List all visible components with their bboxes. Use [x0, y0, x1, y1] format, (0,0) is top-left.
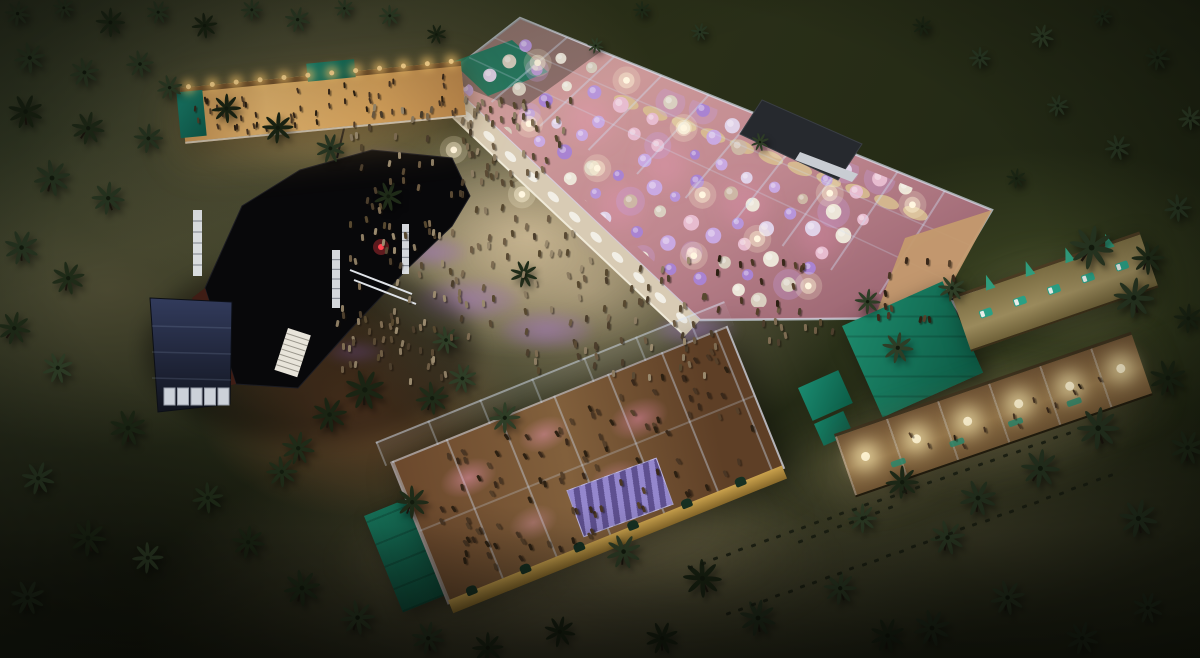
- person: [465, 522, 470, 529]
- palm-tree: [597, 525, 650, 578]
- person: [438, 232, 441, 239]
- person: [475, 147, 479, 154]
- person: [681, 375, 685, 382]
- person: [427, 228, 430, 235]
- person: [441, 260, 444, 267]
- person: [556, 116, 559, 123]
- person: [426, 362, 430, 369]
- fence-post-dash: [952, 471, 958, 475]
- fence-post-dash: [984, 518, 990, 523]
- string-light: [233, 79, 238, 84]
- person: [255, 111, 258, 117]
- table-grid: [382, 39, 913, 308]
- globe-light: [777, 141, 784, 148]
- fence-post-dash: [787, 589, 793, 594]
- person: [583, 450, 588, 457]
- person: [419, 347, 422, 354]
- red-stage-light: [378, 244, 384, 250]
- globe-light: [680, 125, 687, 132]
- person: [715, 269, 718, 276]
- walkway-table: [653, 290, 668, 305]
- green-lounger: [1007, 417, 1023, 428]
- person: [469, 120, 472, 127]
- person: [646, 296, 650, 303]
- palm-tree: [673, 549, 732, 608]
- warm-light-pool: [792, 325, 1192, 515]
- person: [359, 164, 363, 171]
- person: [377, 93, 380, 99]
- planter-shrub: [465, 584, 479, 596]
- person: [583, 275, 586, 282]
- walkway-table: [589, 230, 604, 245]
- person: [776, 300, 779, 307]
- teal-roof-panel-mid: [306, 59, 356, 82]
- cypress-plant: [1061, 246, 1075, 263]
- walkway-table: [503, 149, 518, 164]
- person: [341, 305, 344, 312]
- fence-post-dash: [750, 602, 756, 607]
- cypress-plant: [1021, 259, 1035, 276]
- globe-light: [754, 235, 761, 242]
- fence-post-dash: [1046, 495, 1052, 500]
- person: [398, 152, 401, 159]
- green-lounger: [890, 457, 906, 468]
- person: [641, 505, 646, 512]
- person: [660, 266, 664, 273]
- person: [462, 137, 466, 144]
- fence-post-dash: [726, 611, 732, 616]
- person: [500, 97, 504, 104]
- person: [461, 484, 465, 491]
- ground-lighting-layer: [0, 0, 1200, 658]
- fence-post-dash: [914, 485, 920, 489]
- palm-tree: [0, 85, 53, 138]
- palm-tree: [637, 613, 687, 658]
- pergola-globe-light: [860, 451, 871, 462]
- person: [521, 103, 525, 110]
- person: [580, 264, 584, 271]
- person: [365, 216, 369, 223]
- person: [569, 418, 574, 425]
- stage-red-wall: [192, 288, 236, 388]
- person: [403, 107, 406, 113]
- person: [243, 101, 245, 107]
- person: [619, 337, 623, 344]
- person: [290, 114, 293, 120]
- person: [587, 532, 592, 539]
- person: [522, 113, 525, 120]
- palm-tree: [60, 510, 116, 566]
- person: [486, 552, 491, 559]
- person: [523, 104, 526, 111]
- person: [373, 338, 376, 345]
- person: [884, 303, 888, 310]
- fence-post-dash: [990, 458, 996, 462]
- palm-tree: [963, 41, 997, 75]
- person: [750, 424, 754, 431]
- person: [618, 479, 622, 486]
- person: [606, 313, 610, 320]
- palm-tree: [1109, 489, 1168, 548]
- person: [433, 232, 436, 239]
- palm-tree: [407, 373, 457, 423]
- person: [487, 242, 490, 249]
- person: [569, 97, 572, 104]
- person: [1013, 413, 1016, 420]
- palm-tree: [83, 173, 133, 223]
- person: [484, 113, 487, 120]
- person: [656, 468, 660, 475]
- person: [883, 290, 887, 297]
- teal-kiosk-small: [814, 411, 853, 446]
- person: [511, 116, 515, 123]
- palm-trees-layer: [0, 0, 1200, 658]
- purple-spotlight-pool: [526, 166, 598, 198]
- string-light: [257, 77, 262, 82]
- person: [252, 122, 255, 128]
- person: [531, 153, 534, 160]
- person: [685, 345, 688, 352]
- cabana-canopy: [612, 92, 641, 113]
- globe-light: [623, 77, 630, 84]
- person: [193, 105, 196, 111]
- fence-post-dash: [814, 521, 820, 525]
- teal-roof-panel-left: [176, 90, 206, 138]
- person: [461, 191, 464, 198]
- palm-tree: [1124, 584, 1172, 632]
- palm-tree: [1123, 233, 1173, 283]
- person: [703, 372, 706, 379]
- fence-post-dash: [927, 480, 933, 484]
- stage-rail: [354, 280, 416, 304]
- person: [535, 350, 538, 357]
- person: [480, 99, 484, 106]
- person: [590, 528, 595, 535]
- person: [460, 179, 464, 186]
- string-light: [425, 61, 430, 66]
- palm-tree: [1172, 100, 1200, 136]
- fence-post-dash: [977, 463, 983, 467]
- person: [431, 159, 434, 166]
- palm-tree: [0, 0, 38, 34]
- palm-tree: [329, 0, 360, 23]
- person: [381, 239, 384, 246]
- person: [348, 345, 351, 352]
- glass-overhang: [443, 18, 600, 110]
- fence-post-dash: [836, 525, 842, 530]
- person: [420, 111, 423, 118]
- person: [206, 99, 208, 105]
- palm-tree: [100, 400, 156, 456]
- lounger: [1012, 295, 1027, 307]
- person: [466, 332, 470, 339]
- palm-tree: [6, 34, 54, 82]
- pergola-globe-light: [911, 433, 922, 444]
- person: [673, 470, 678, 477]
- person: [582, 455, 588, 462]
- fence-post-dash: [902, 489, 908, 493]
- person: [562, 127, 565, 134]
- person: [557, 249, 561, 256]
- bar-pavilion: [180, 61, 466, 144]
- palm-tree: [861, 609, 914, 658]
- palm-tree: [440, 356, 485, 401]
- person: [246, 129, 249, 135]
- person: [343, 82, 346, 88]
- person: [546, 541, 550, 548]
- person: [660, 374, 664, 381]
- person: [451, 280, 455, 287]
- fence-post-dash: [898, 549, 904, 554]
- person: [500, 116, 503, 123]
- person: [621, 359, 624, 366]
- person: [426, 135, 429, 142]
- person: [953, 435, 956, 442]
- person: [526, 348, 530, 355]
- person: [568, 319, 572, 326]
- person: [489, 106, 492, 113]
- yellow-wall: [448, 465, 787, 613]
- person: [396, 317, 399, 324]
- fence-post-dash: [1053, 436, 1059, 440]
- person: [798, 308, 801, 315]
- fence-post-dash: [810, 534, 816, 539]
- planter-shrub: [680, 497, 694, 509]
- person: [602, 440, 607, 447]
- fence-post-dash: [877, 498, 883, 502]
- person: [401, 168, 405, 175]
- person: [209, 108, 211, 114]
- person: [918, 316, 922, 323]
- person: [387, 223, 390, 230]
- person: [476, 475, 482, 482]
- hut-slat-wall: [795, 152, 858, 182]
- person: [581, 472, 586, 479]
- fence-post-dash: [1003, 454, 1009, 458]
- person: [487, 234, 491, 241]
- person: [558, 545, 563, 552]
- lounger: [978, 307, 993, 319]
- person: [594, 342, 597, 349]
- person: [464, 550, 468, 557]
- person: [424, 221, 428, 228]
- planter-shrub: [734, 475, 748, 487]
- person: [678, 305, 681, 312]
- palm-tree: [1161, 421, 1200, 474]
- palm-tree: [840, 496, 885, 541]
- fence-post-dash: [886, 553, 892, 558]
- party-hall-pavilion: [390, 326, 785, 605]
- palm-tree: [904, 600, 960, 656]
- tent-panel: [164, 388, 175, 405]
- fence-post-dash: [864, 503, 870, 507]
- planter-shrub: [626, 519, 640, 531]
- pergola-globe-light: [1064, 380, 1075, 391]
- person: [651, 422, 656, 429]
- person: [493, 481, 497, 488]
- person: [508, 170, 511, 177]
- person: [735, 407, 740, 414]
- globe-light: [805, 283, 812, 290]
- person: [388, 160, 392, 167]
- person: [377, 207, 381, 214]
- cabana-canopy: [901, 203, 930, 224]
- person: [368, 97, 372, 103]
- person: [717, 306, 721, 313]
- fence-post-dash: [923, 540, 929, 545]
- person: [440, 373, 443, 380]
- person: [471, 536, 476, 543]
- person: [226, 100, 228, 106]
- person: [783, 332, 787, 339]
- fence-post-dash: [849, 520, 855, 525]
- string-light: [353, 68, 358, 73]
- person: [446, 452, 450, 459]
- person: [432, 325, 436, 332]
- person: [360, 234, 363, 241]
- palm-tree: [204, 86, 249, 131]
- person: [908, 431, 913, 438]
- person: [534, 125, 538, 132]
- lounger: [1046, 284, 1061, 296]
- person: [380, 350, 383, 357]
- person: [376, 354, 379, 361]
- fence-post-dash: [688, 565, 694, 569]
- person: [503, 238, 506, 245]
- warm-light-pool: [740, 410, 980, 530]
- person: [630, 284, 634, 291]
- person: [522, 271, 526, 278]
- palm-tree: [184, 474, 232, 522]
- person: [353, 360, 357, 367]
- palm-tree: [334, 359, 396, 421]
- palm-tree: [34, 344, 82, 392]
- string-light: [305, 72, 310, 77]
- person: [605, 276, 608, 283]
- person: [264, 126, 268, 132]
- purple-spotlight-pool: [396, 272, 540, 328]
- globe-light: [909, 201, 916, 208]
- palm-tree: [1001, 163, 1032, 194]
- palm-tree: [921, 511, 974, 564]
- person: [342, 343, 345, 350]
- person: [635, 457, 641, 464]
- tent-panel: [218, 388, 229, 405]
- person: [683, 338, 686, 345]
- person: [630, 378, 635, 385]
- person: [667, 275, 670, 282]
- person: [418, 161, 421, 168]
- person: [660, 276, 663, 283]
- person: [393, 133, 396, 140]
- person: [240, 115, 243, 121]
- person: [293, 112, 297, 118]
- palm-tree: [366, 174, 411, 219]
- person: [773, 318, 776, 325]
- person: [380, 321, 383, 328]
- lounger-pillow: [1082, 275, 1088, 282]
- pergola-globe-light: [962, 416, 973, 427]
- person: [687, 257, 690, 264]
- lounger: [1081, 272, 1096, 284]
- palm-tree: [583, 33, 608, 58]
- person: [469, 129, 472, 136]
- palm-tree: [47, 0, 81, 25]
- person: [1017, 423, 1022, 430]
- person: [480, 178, 483, 185]
- person: [470, 151, 474, 158]
- person: [525, 328, 529, 335]
- lounger-pillow: [1048, 287, 1054, 294]
- palm-tree: [63, 103, 113, 153]
- warm-light-pool: [320, 400, 880, 640]
- person: [623, 300, 626, 307]
- palm-tree: [907, 11, 938, 42]
- person: [432, 356, 435, 363]
- person: [547, 215, 550, 222]
- cabana-canopy: [670, 114, 699, 135]
- person: [701, 293, 705, 300]
- person: [432, 229, 435, 236]
- fence-post-dash: [935, 536, 941, 541]
- person: [802, 263, 805, 270]
- person: [410, 116, 414, 123]
- person: [656, 416, 660, 423]
- person: [425, 113, 428, 120]
- person: [705, 354, 711, 361]
- person: [603, 445, 608, 452]
- fence-post-dash: [837, 571, 843, 576]
- person: [371, 203, 375, 210]
- person: [673, 319, 677, 326]
- fence-post-dash: [1028, 445, 1034, 449]
- palm-tree: [223, 517, 273, 567]
- globe-light: [519, 191, 526, 198]
- walkway-table: [546, 190, 561, 205]
- teal-kiosk: [798, 370, 853, 421]
- person: [1073, 389, 1078, 396]
- person: [590, 412, 594, 419]
- purple-striped-stairs: [566, 458, 673, 538]
- person: [605, 268, 608, 275]
- walkway-table: [524, 169, 539, 184]
- person: [527, 496, 532, 503]
- palm-tree: [62, 50, 107, 95]
- fence-post-dash: [800, 585, 806, 590]
- stage-rail: [350, 270, 412, 294]
- warm-light-pool: [922, 228, 1200, 368]
- person: [484, 540, 490, 547]
- person: [240, 96, 243, 102]
- person: [606, 322, 609, 329]
- cypress-plant: [1100, 232, 1114, 249]
- fence-post-dash: [1095, 478, 1101, 483]
- person: [451, 110, 454, 116]
- palm-tree: [536, 608, 584, 656]
- person: [687, 489, 692, 496]
- person: [336, 320, 340, 327]
- person: [349, 221, 352, 228]
- lounger-pillow: [980, 311, 986, 318]
- person: [419, 324, 422, 331]
- warm-light-pool: [148, 56, 488, 196]
- person: [497, 100, 501, 107]
- pergola-walkway: [834, 332, 1153, 498]
- fence-post-dash: [960, 527, 966, 532]
- truss-midline: [420, 395, 755, 532]
- person: [255, 122, 258, 128]
- person: [416, 184, 420, 191]
